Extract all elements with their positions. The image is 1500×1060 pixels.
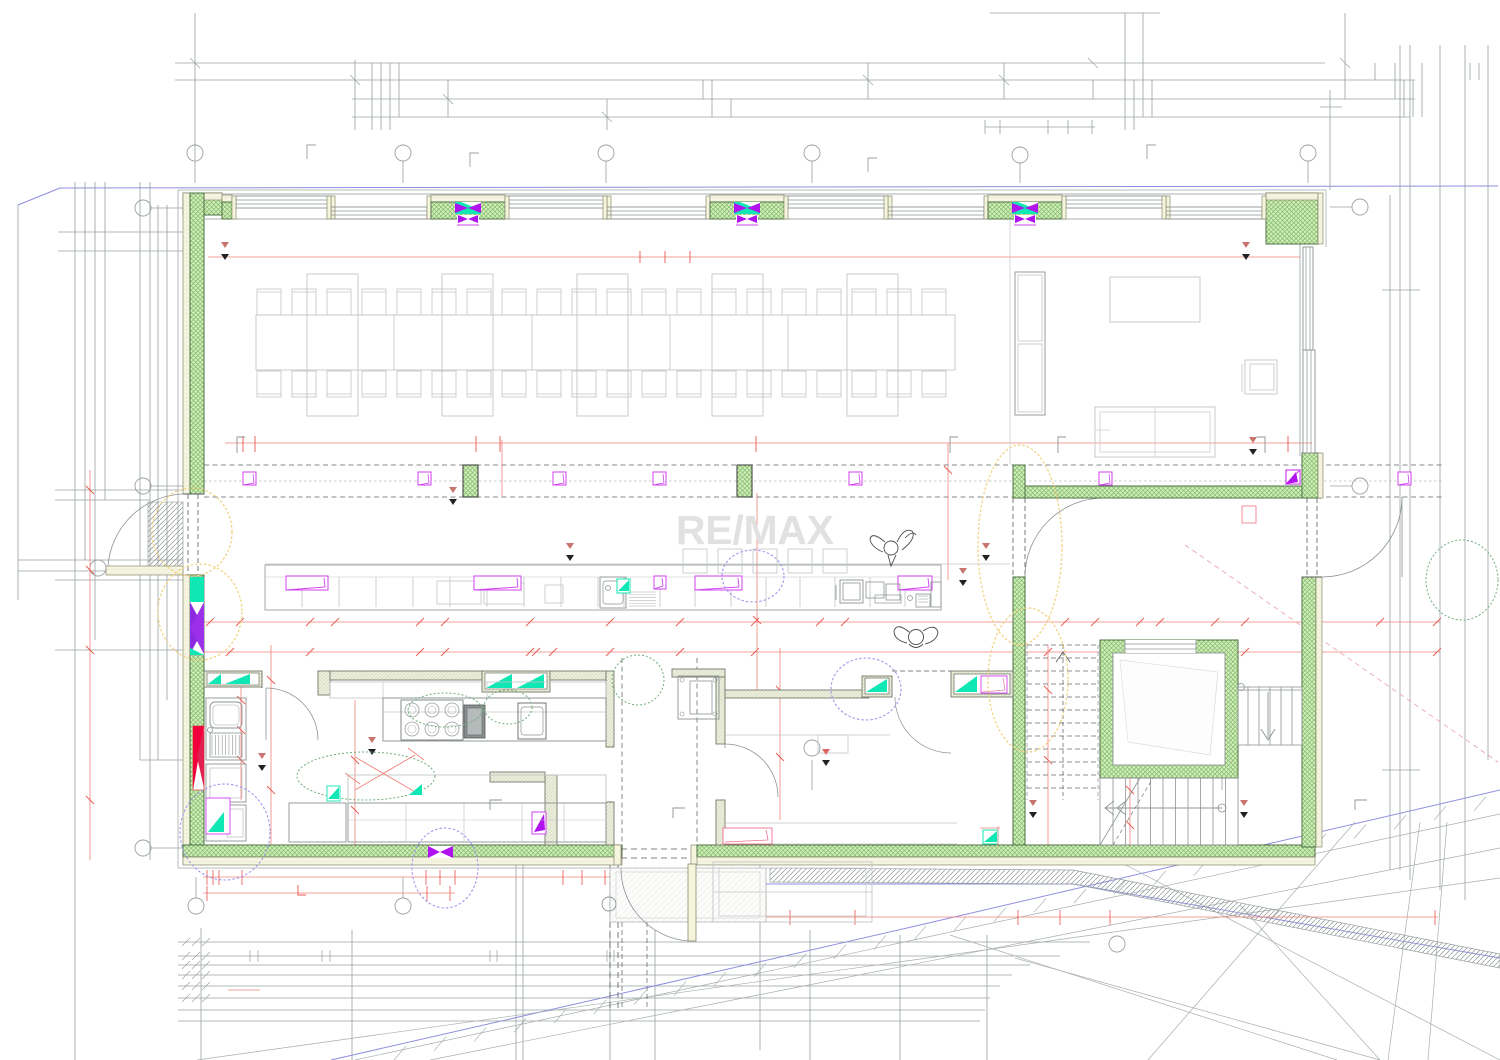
svg-text:RE/MAX: RE/MAX bbox=[676, 507, 834, 553]
